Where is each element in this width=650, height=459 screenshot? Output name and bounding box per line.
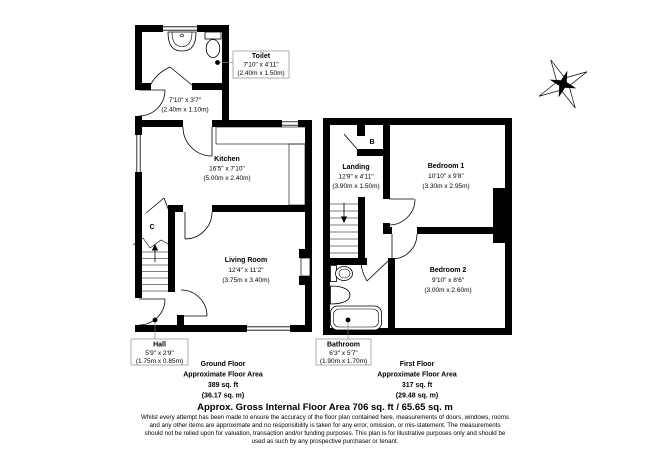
fireplace [299,249,312,285]
ground-floor-title: Ground Floor [201,361,246,368]
first-floor-summary: First Floor Approximate Floor Area 317 s… [377,361,457,400]
bathtub [331,306,382,330]
bathroom-size: 6'3" x 5'7" [329,350,358,357]
sink [331,286,351,304]
landing-size: 12'9" x 4'11" [338,174,374,181]
first-floor-title: First Floor [400,361,435,368]
label-anchor-dot [346,318,351,323]
first-floor-stairs [330,203,358,259]
label-anchor-dot [153,318,158,323]
bedroom2-size: 9'10" x 8'6" [432,277,465,284]
bedroom2-name: Bedroom 2 [430,267,467,274]
bedroom1-size: 10'10" x 9'8" [428,173,464,180]
toilet-size-m: (2.40m x 1.50m) [237,70,284,77]
first-floor-walls [323,118,512,335]
first-floor-subtitle: Approximate Floor Area [377,372,457,379]
floorplan-drawing: Toilet 7'10" x 4'11" (2.40m x 1.50m) 7'1… [0,0,650,459]
ground-floor-subtitle: Approximate Floor Area [183,372,263,379]
toilet-name: Toilet [252,53,271,60]
lobby-size-m: (2.40m x 1.10m) [161,107,208,114]
ground-floor-area-ft: 389 sq. ft [208,382,239,389]
toilet-cistern [205,32,221,39]
bathroom-size-m: (1.90m x 1.70m) [320,358,367,365]
bathroom-fixtures [331,266,382,331]
cupboard-label: C [149,224,154,231]
hall-name: Hall [153,342,166,349]
floorplan-page: Toilet 7'10" x 4'11" (2.40m x 1.50m) 7'1… [0,0,650,459]
compass-rose-icon [515,36,611,132]
lobby-size: 7'10" x 3'7" [169,97,202,104]
first-floor-area-m: (29.48 sq. m) [396,393,438,400]
kitchen-size-m: (5.00m x 2.40m) [203,175,250,182]
bedroom1-name: Bedroom 1 [428,163,465,170]
first-floor-area-ft: 317 sq. ft [402,382,433,389]
disclaimer-text: Whilst every attempt has been made to en… [140,414,510,446]
kitchen-name: Kitchen [214,156,240,163]
first-floor-plan: Landing 12'9" x 4'11" (3.90m x 1.50m) B … [316,118,512,400]
toilet-size: 7'10" x 4'11" [243,62,279,69]
living-room-size-m: (3.75m x 3.40m) [222,277,269,284]
hall-size: 5'9" x 2'9" [145,350,174,357]
bedroom2-size-m: (3.00m x 2.60m) [424,287,471,294]
bedroom1-size-m: (3.30m x 2.95m) [422,183,469,190]
gross-area-title: Approx. Gross Internal Floor Area 706 sq… [0,402,650,413]
kitchen-size: 16'5" x 7'10" [209,166,245,173]
landing-size-m: (3.90m x 1.50m) [332,183,379,190]
toilet-bowl [206,40,220,58]
landing-name: Landing [342,164,369,171]
ground-floor-plan: Toilet 7'10" x 4'11" (2.40m x 1.50m) 7'1… [131,25,312,400]
ground-floor-area-m: (36.17 sq. m) [202,393,244,400]
living-room-name: Living Room [225,257,267,264]
ground-floor-summary: Ground Floor Approximate Floor Area 389 … [183,361,263,400]
bathroom-name: Bathroom [327,342,360,349]
hall-size-m: (1.75m x 0.85m) [136,358,183,365]
label-anchor-dot [215,60,220,65]
wc-fixtures [168,32,221,58]
boiler-label: B [369,139,374,146]
living-room-size: 12'4" x 11'2" [228,267,264,274]
chimney-breast [493,188,505,243]
